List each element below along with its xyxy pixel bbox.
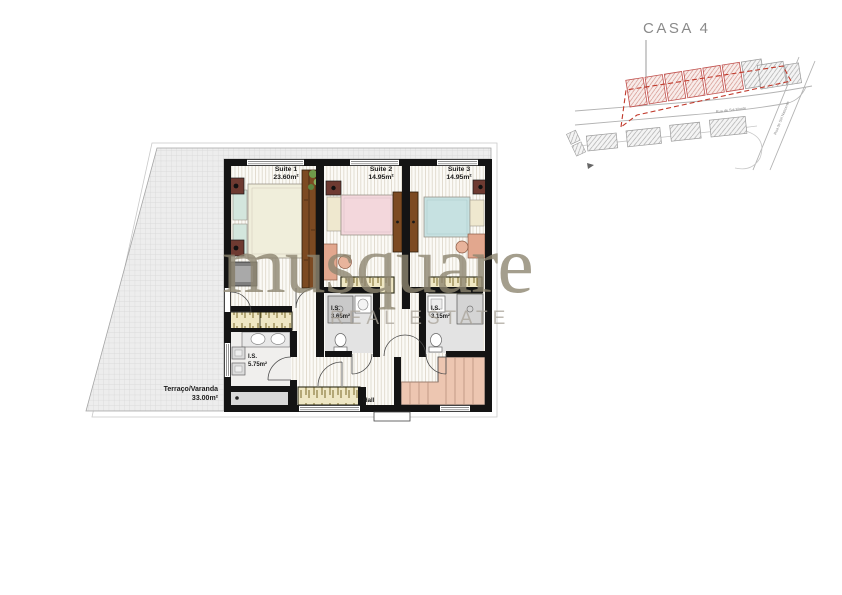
window: [225, 343, 230, 377]
room-name: Suite 2: [357, 166, 405, 174]
room-area: 14.95m²: [435, 174, 483, 182]
room-name: Terraço/Varanda: [120, 386, 218, 395]
hall-radiator: [298, 387, 360, 405]
neighbor-building: [757, 59, 801, 89]
sink: [271, 334, 285, 345]
site-plan-title: CASA 4: [643, 20, 711, 39]
plot-townhouses: [626, 59, 766, 107]
site-plan: Rua de Sol Monte Rua de Sol Nascente: [566, 40, 815, 170]
road-edge: [575, 103, 788, 125]
sink: [251, 334, 265, 345]
entry-step: [374, 412, 410, 421]
hall-label: Hall: [363, 397, 375, 405]
room-name: Suite 1: [262, 166, 310, 174]
suite1-label: Suite 1 23.60m²: [262, 166, 310, 183]
north-mark-icon: [587, 163, 594, 169]
bathroom1-label: I.S. 5.75m²: [248, 354, 288, 369]
room-name: I.S.: [248, 354, 288, 362]
window: [247, 160, 304, 165]
suite3-label: Suite 3 14.95m²: [435, 166, 483, 183]
storage-room-floor: [231, 391, 289, 406]
window: [299, 406, 360, 411]
toilet: [335, 334, 346, 347]
site-outline: [735, 130, 762, 169]
room-name: Suite 3: [435, 166, 483, 174]
road-label-diagonal: Rua de Sol Nascente: [773, 101, 790, 136]
road-label-horizontal: Rua de Sol Monte: [716, 106, 747, 114]
watermark-tagline: REAL ESTATE: [330, 308, 510, 330]
storage-dot: [235, 396, 239, 400]
terrace-label: Terraço/Varanda 33.00m²: [120, 386, 218, 404]
floorplan-page: Rua de Sol Monte Rua de Sol Nascente CAS…: [0, 0, 842, 595]
toilet: [431, 334, 442, 347]
suite2-label: Suite 2 14.95m²: [357, 166, 405, 183]
watermark-brand: musquare: [222, 218, 533, 312]
room-area: 14.95m²: [357, 174, 405, 182]
room-area: 5.75m²: [248, 362, 288, 370]
window: [437, 160, 478, 165]
neighbor-buildings-small: [566, 130, 585, 156]
window: [350, 160, 399, 165]
window: [440, 406, 470, 411]
suite1-pillow: [233, 190, 247, 220]
room-area: 23.60m²: [262, 174, 310, 182]
room-area: 33.00m²: [120, 395, 218, 404]
